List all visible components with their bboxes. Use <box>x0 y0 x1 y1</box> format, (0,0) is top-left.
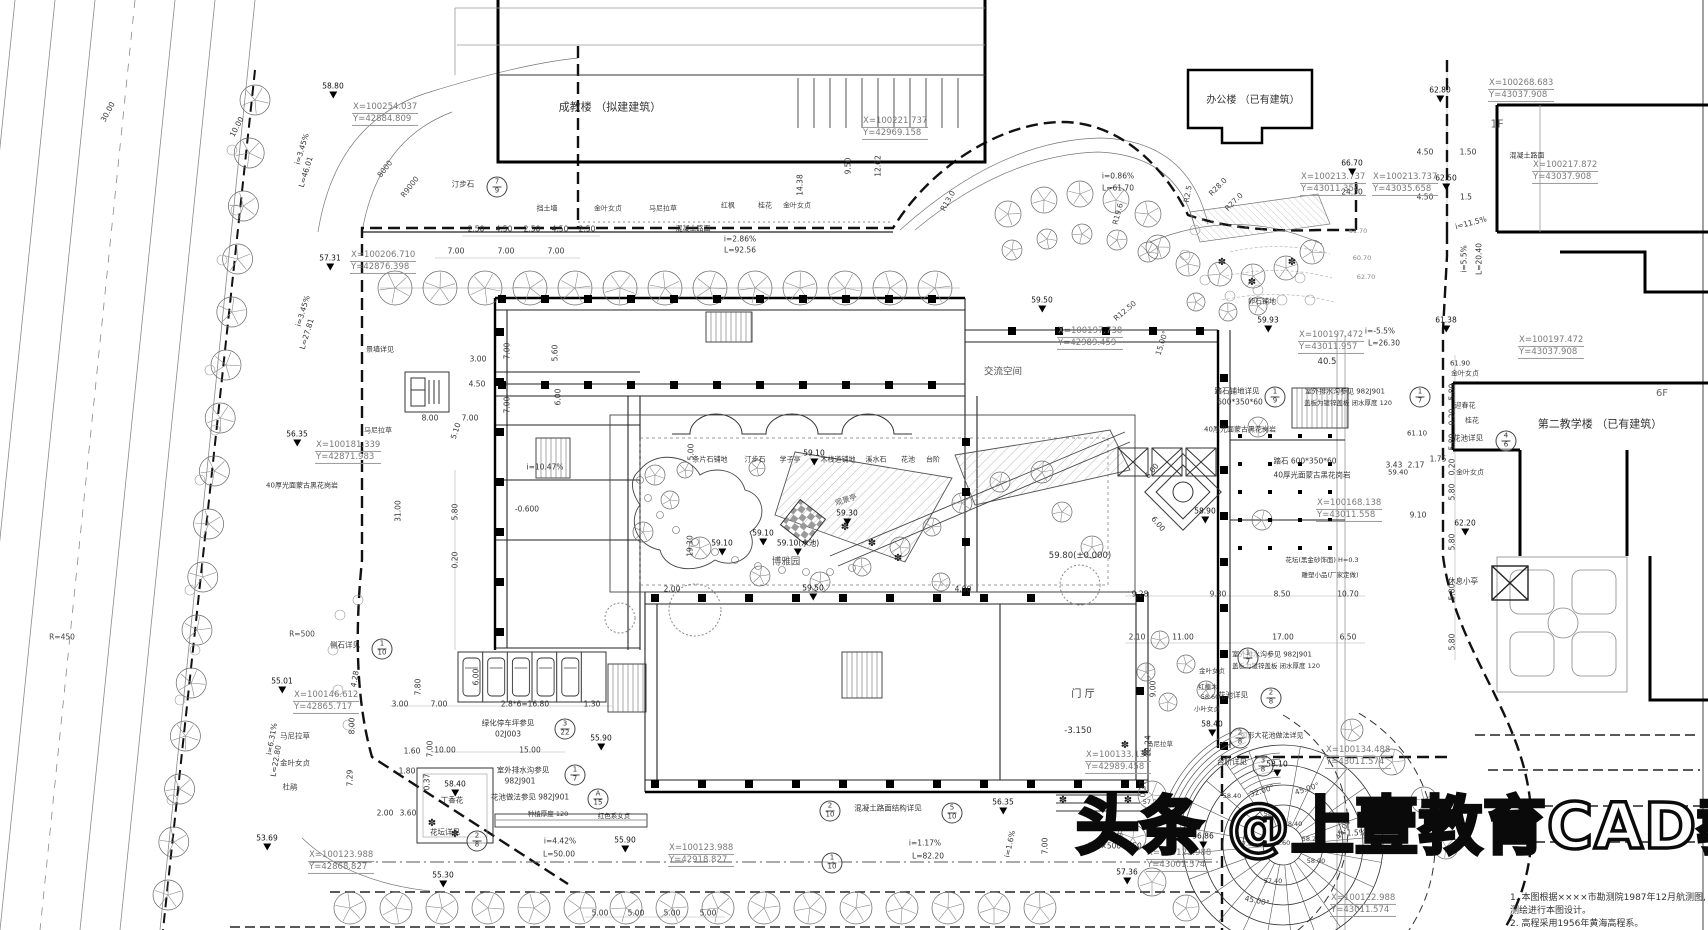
road-lines <box>0 0 255 930</box>
office-building <box>1188 70 1312 143</box>
hedge-bed <box>495 814 647 827</box>
svg-text:✽: ✽ <box>894 553 902 564</box>
note-line-1: 1. 本图根据××××市勘测院1987年12月航测图, <box>1510 892 1706 905</box>
drawing-notes: 1. 本图根据××××市勘测院1987年12月航测图, 测绘进行本图设计。 2.… <box>1510 892 1706 930</box>
contour-curves <box>1222 246 1334 302</box>
svg-text:✽: ✽ <box>1248 277 1256 288</box>
pond <box>633 457 762 568</box>
sculpture-planter <box>1145 454 1221 530</box>
svg-text:✽: ✽ <box>841 522 849 533</box>
facade-bays <box>672 414 912 434</box>
svg-text:✽: ✽ <box>1141 748 1149 759</box>
watermark: 头条 @上壹教育CAD教学 <box>1076 776 1708 867</box>
feature-wall <box>405 372 449 412</box>
site-plan-canvas: ✽✽✽✽✽✽✽✽✽✽✽✽ 汀步石挡土墙混凝土路面混凝土路面成教楼 （拟建建筑）办… <box>0 0 1708 930</box>
chengjiao-building <box>455 0 985 162</box>
svg-text:✽: ✽ <box>1218 257 1226 268</box>
svg-text:✽: ✽ <box>428 818 436 829</box>
building-1f <box>1497 105 1708 292</box>
note-line-3: 2. 高程采用1956年黄海高程系。 <box>1510 918 1706 930</box>
svg-text:✽: ✽ <box>1288 257 1296 268</box>
svg-text:✽: ✽ <box>1059 795 1067 806</box>
note-line-2: 测绘进行本图设计。 <box>1510 905 1706 918</box>
second-teaching-building <box>1453 383 1708 700</box>
svg-text:✽: ✽ <box>451 829 459 840</box>
svg-text:✽: ✽ <box>868 538 876 549</box>
svg-text:✽: ✽ <box>1121 740 1129 751</box>
hatched-bed <box>1190 194 1330 242</box>
